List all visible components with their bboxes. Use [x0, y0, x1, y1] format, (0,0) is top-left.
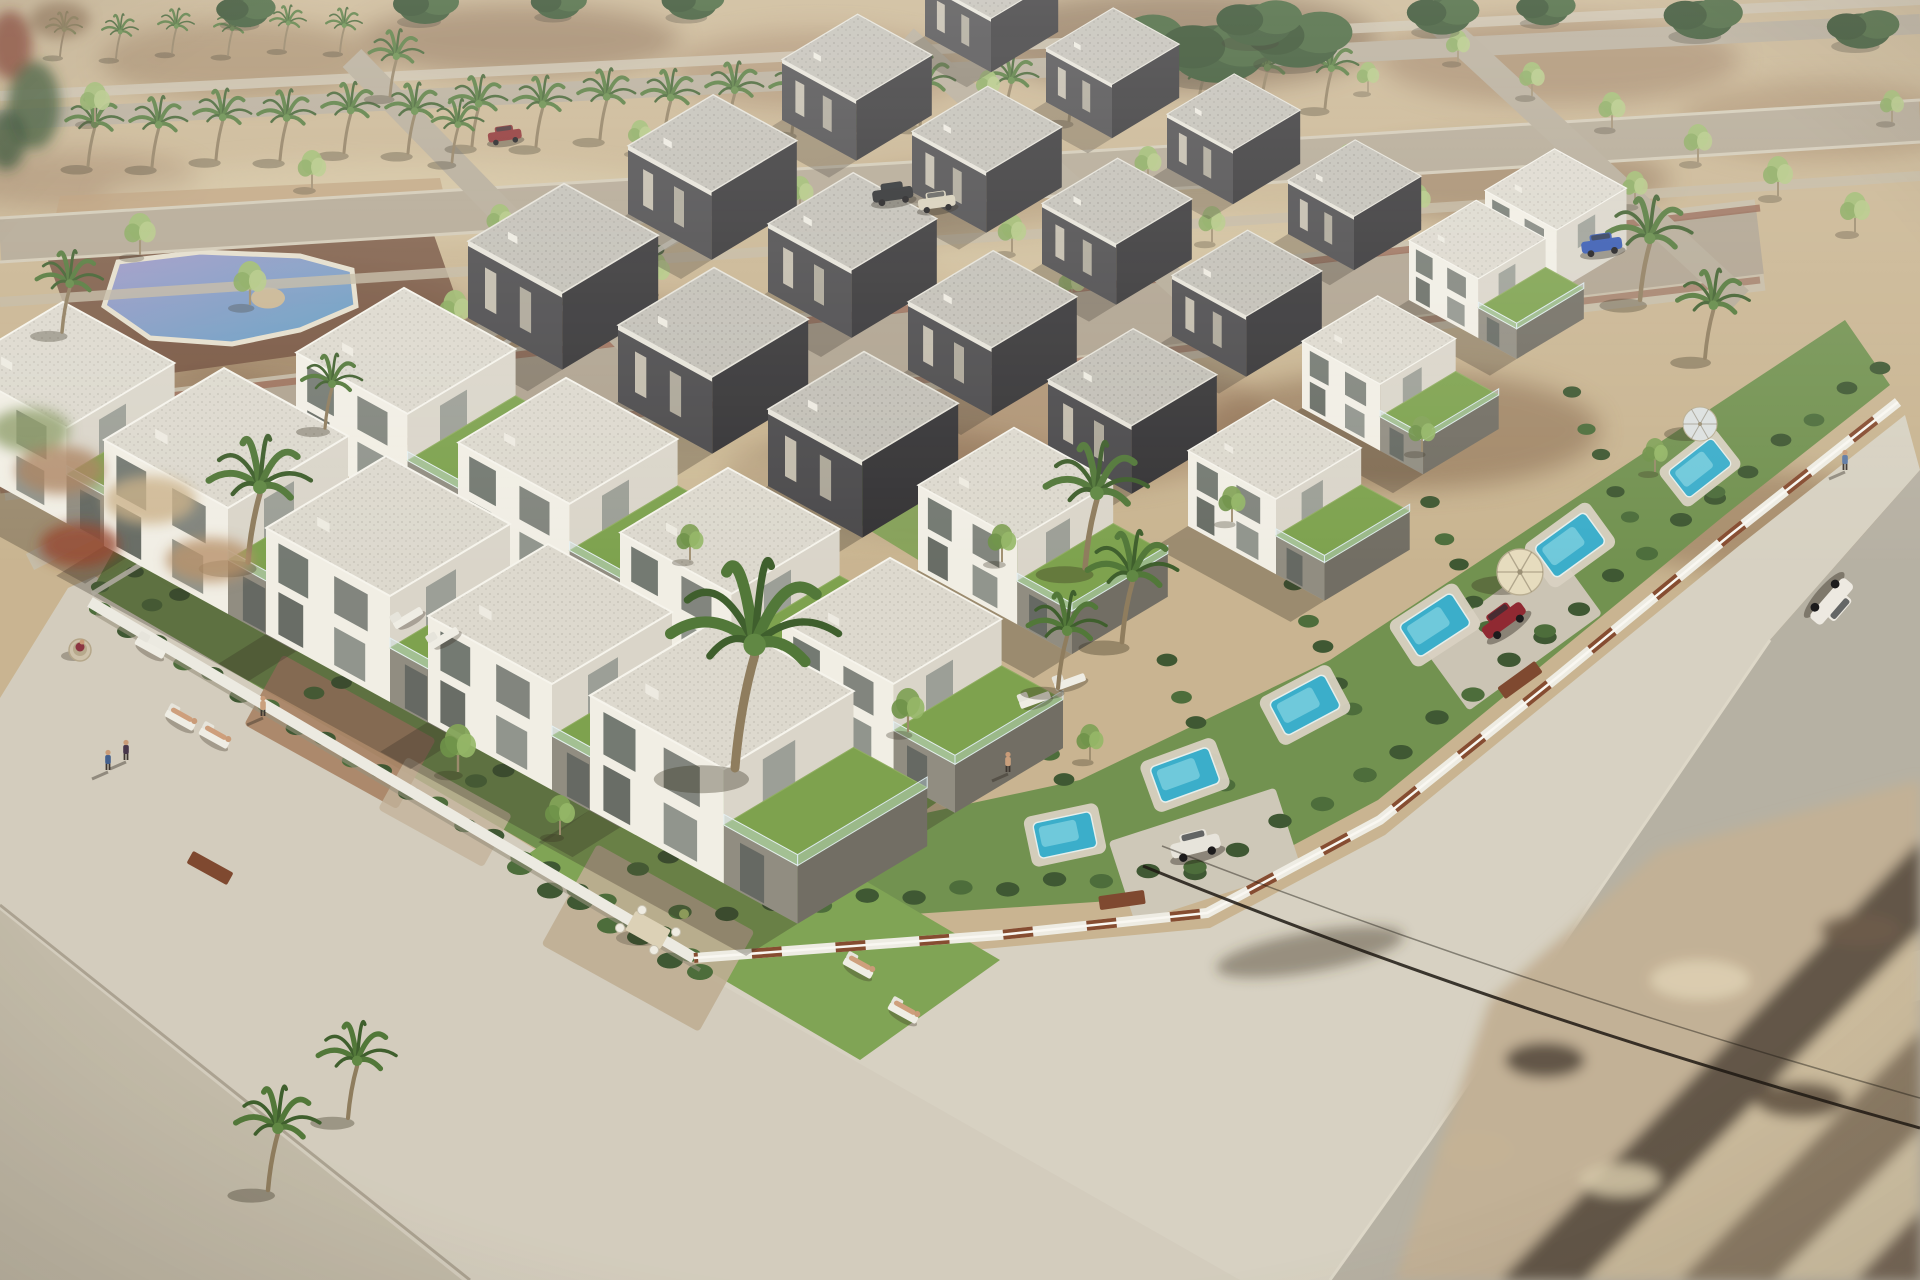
architectural-render-figure [0, 0, 1920, 1280]
vignette [0, 0, 1920, 1280]
aerial-render-page: { "meta": { "kind": "3d-architectural-ae… [0, 0, 1920, 1280]
render-scene [0, 0, 1920, 1280]
color-grade-overlays [0, 0, 1920, 1280]
